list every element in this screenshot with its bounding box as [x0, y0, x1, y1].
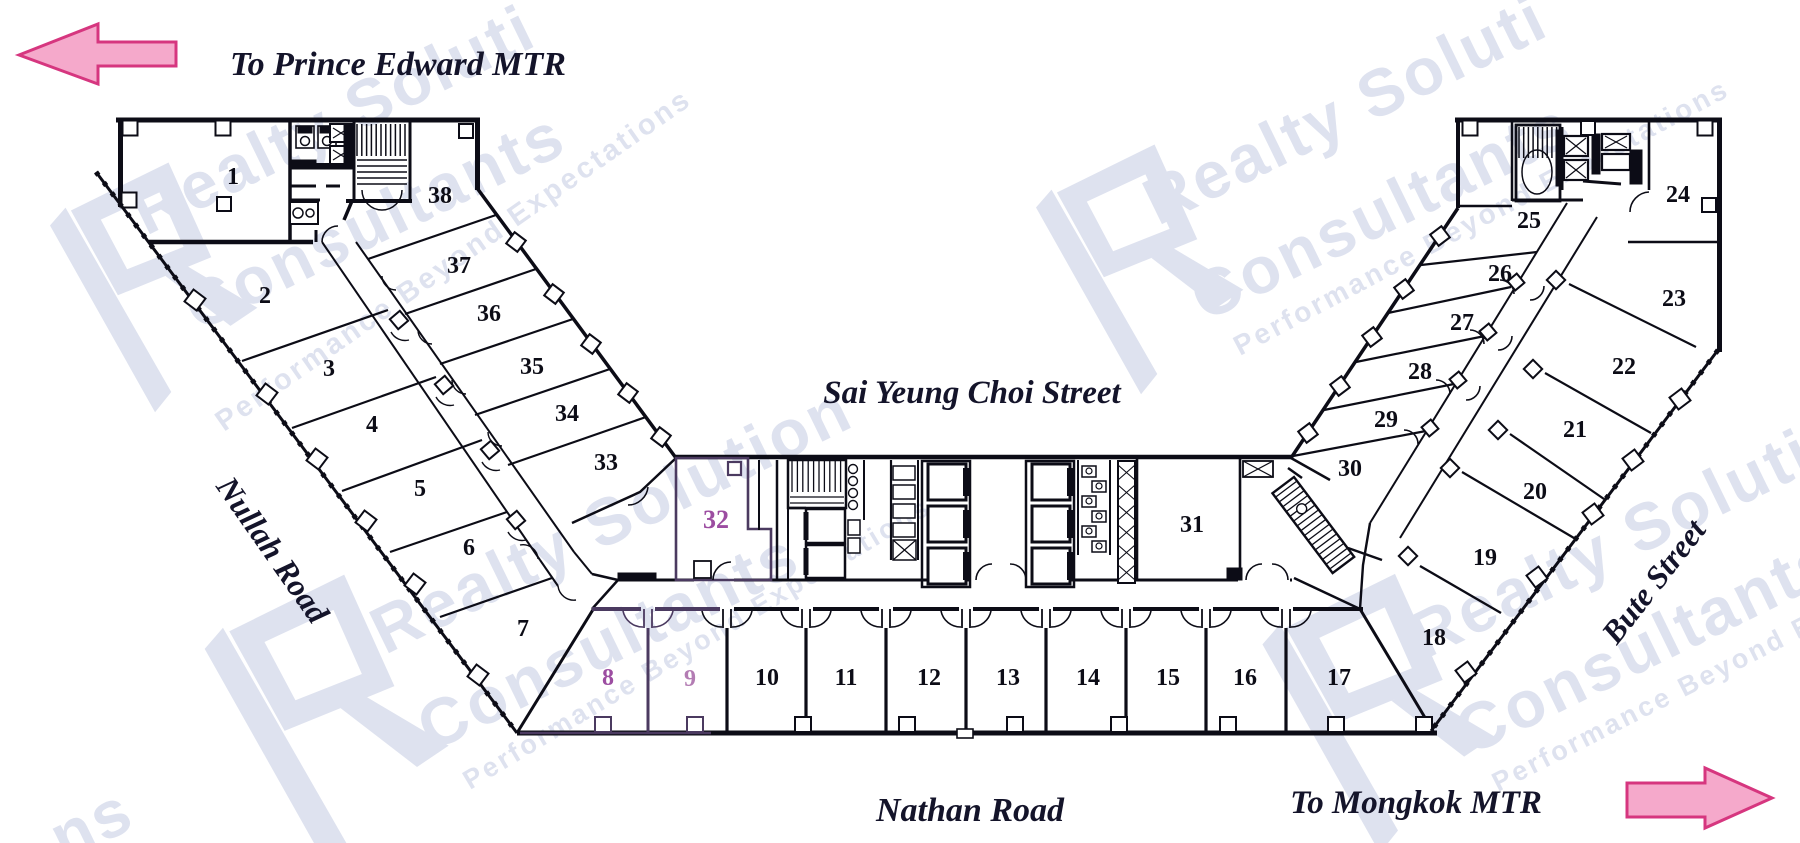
svg-text:4: 4 [366, 412, 378, 438]
svg-text:21: 21 [1563, 417, 1587, 443]
svg-text:25: 25 [1517, 208, 1541, 234]
svg-text:28: 28 [1408, 359, 1432, 385]
svg-text:23: 23 [1662, 286, 1686, 312]
svg-text:20: 20 [1523, 479, 1547, 505]
svg-text:36: 36 [477, 301, 501, 327]
svg-text:31: 31 [1180, 512, 1204, 538]
svg-text:32: 32 [703, 505, 729, 534]
svg-text:Nathan Road: Nathan Road [875, 792, 1065, 829]
svg-text:38: 38 [428, 183, 452, 209]
svg-text:2: 2 [259, 283, 271, 309]
svg-text:7: 7 [517, 616, 529, 642]
svg-text:34: 34 [555, 401, 579, 427]
svg-text:10: 10 [755, 665, 779, 691]
svg-text:13: 13 [996, 665, 1020, 691]
svg-text:15: 15 [1156, 665, 1180, 691]
svg-text:26: 26 [1488, 261, 1512, 287]
svg-text:18: 18 [1422, 625, 1446, 651]
svg-text:Sai Yeung Choi Street: Sai Yeung Choi Street [823, 375, 1121, 411]
svg-text:37: 37 [447, 253, 471, 279]
svg-text:19: 19 [1473, 545, 1497, 571]
svg-text:33: 33 [594, 450, 618, 476]
svg-text:29: 29 [1374, 407, 1398, 433]
svg-text:30: 30 [1338, 456, 1362, 482]
svg-text:6: 6 [463, 535, 475, 561]
svg-text:12: 12 [917, 665, 941, 691]
svg-text:9: 9 [684, 666, 696, 692]
svg-text:27: 27 [1450, 310, 1474, 336]
svg-text:To Mongkok MTR: To Mongkok MTR [1290, 785, 1542, 821]
svg-text:8: 8 [602, 665, 614, 691]
svg-text:14: 14 [1076, 665, 1100, 691]
svg-text:To Prince Edward MTR: To Prince Edward MTR [230, 46, 566, 83]
svg-text:22: 22 [1612, 354, 1636, 380]
svg-text:1: 1 [227, 164, 239, 190]
svg-text:5: 5 [414, 476, 426, 502]
svg-text:35: 35 [520, 354, 544, 380]
svg-text:11: 11 [835, 665, 858, 691]
svg-text:16: 16 [1233, 665, 1257, 691]
svg-text:17: 17 [1327, 665, 1351, 691]
svg-text:24: 24 [1666, 182, 1690, 208]
svg-text:3: 3 [323, 356, 335, 382]
